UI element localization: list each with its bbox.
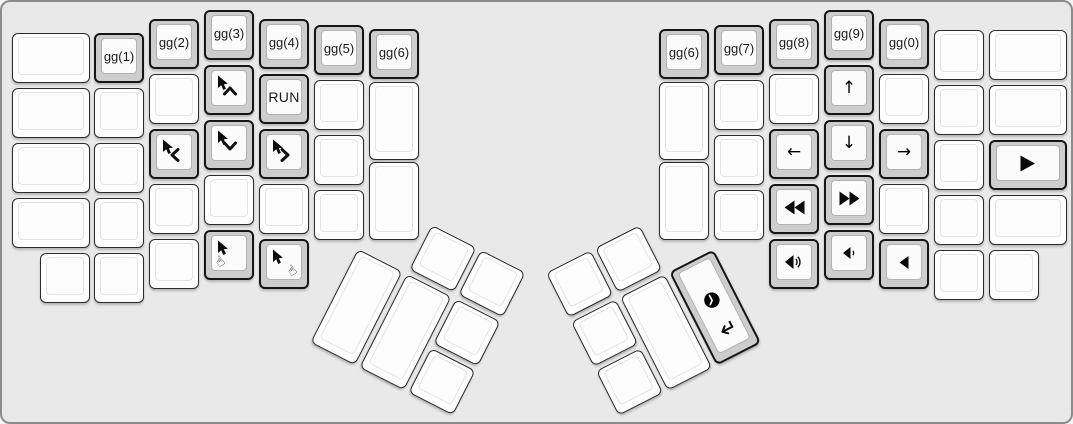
keytop — [375, 166, 413, 232]
key-legend: RUN — [268, 89, 299, 105]
keytop: ← — [776, 134, 812, 170]
key-mouse-left[interactable] — [149, 129, 199, 179]
keytop — [775, 78, 813, 116]
keytop: gg(3) — [211, 15, 247, 51]
keytop — [417, 354, 468, 405]
keytop — [46, 257, 84, 295]
keytop — [320, 139, 358, 177]
key-mute[interactable] — [879, 239, 929, 289]
keytop: RUN — [266, 79, 302, 115]
key-blank[interactable] — [259, 184, 309, 234]
keytop — [831, 235, 867, 271]
keytop: gg(2) — [156, 24, 192, 60]
keytop — [155, 78, 193, 116]
keytop — [940, 144, 978, 182]
keytop — [553, 257, 604, 308]
keytop — [776, 189, 812, 225]
key-blank[interactable] — [12, 88, 90, 138]
key-blank[interactable] — [149, 74, 199, 124]
keytop — [885, 78, 923, 116]
key-blank[interactable] — [879, 184, 929, 234]
keytop — [375, 86, 413, 152]
arrow-down-icon: ↓ — [842, 135, 856, 152]
key-gg-4[interactable]: gg(4) — [259, 19, 309, 69]
keytop — [831, 180, 867, 216]
keytop — [578, 306, 629, 357]
key-mouse-up[interactable] — [204, 65, 254, 115]
key-blank[interactable] — [714, 80, 764, 130]
fast-forward-icon — [839, 191, 860, 206]
key-blank[interactable] — [12, 33, 90, 83]
chevron-right-icon — [280, 147, 291, 162]
keytop: ☝ — [266, 244, 302, 280]
keytop — [940, 254, 978, 292]
key-blank[interactable] — [40, 253, 90, 303]
arrow-up-icon: ↑ — [842, 80, 856, 97]
keytop — [602, 232, 653, 283]
chevron-down-icon — [223, 140, 238, 151]
keytop — [211, 125, 247, 161]
key-legend: gg(9) — [834, 26, 864, 41]
keytop: ↑ — [831, 70, 867, 106]
key-blank[interactable] — [659, 82, 709, 160]
key-mouse-button-right[interactable]: ☝ — [259, 239, 309, 289]
keytop — [995, 34, 1061, 72]
key-play[interactable] — [989, 140, 1067, 190]
key-fast-forward[interactable] — [824, 175, 874, 225]
keytop — [665, 166, 703, 232]
key-blank[interactable] — [204, 175, 254, 225]
keyboard-canvas: gg(1)gg(2)gg(3)☝gg(4)RUN☝gg(5)gg(6)gg(6)… — [0, 0, 1073, 424]
keytop: gg(6) — [666, 34, 702, 70]
key-blank[interactable] — [94, 143, 144, 193]
key-gg-6-right[interactable]: gg(6) — [659, 29, 709, 79]
keytop — [266, 134, 302, 170]
key-gg-3[interactable]: gg(3) — [204, 10, 254, 60]
arrow-left-icon: ← — [787, 144, 801, 161]
keytop — [442, 305, 493, 356]
key-arrow-down[interactable]: ↓ — [824, 120, 874, 170]
chevron-left-icon — [170, 147, 181, 162]
key-run[interactable]: RUN — [259, 74, 309, 124]
key-blank[interactable] — [369, 162, 419, 240]
keytop: gg(9) — [831, 15, 867, 51]
keytop — [665, 86, 703, 152]
keytop — [320, 194, 358, 232]
key-blank[interactable] — [989, 250, 1039, 300]
keytop — [720, 194, 758, 232]
key-legend: gg(7) — [724, 41, 754, 56]
volume-down-icon — [842, 246, 857, 260]
key-blank[interactable] — [149, 184, 199, 234]
keytop — [18, 92, 84, 130]
key-mouse-down[interactable] — [204, 120, 254, 170]
keytop — [100, 147, 138, 185]
chevron-up-icon — [223, 85, 238, 96]
keytop — [100, 92, 138, 130]
key-volume-up[interactable] — [769, 239, 819, 289]
key-blank[interactable] — [989, 85, 1067, 135]
key-rewind[interactable] — [769, 184, 819, 234]
key-blank[interactable] — [94, 198, 144, 248]
key-blank[interactable] — [149, 239, 199, 289]
key-legend: gg(4) — [269, 35, 299, 50]
key-arrow-right[interactable]: → — [879, 129, 929, 179]
keytop: ☝ — [211, 235, 247, 271]
keytop — [155, 188, 193, 226]
key-mouse-button-left[interactable]: ☝ — [204, 230, 254, 280]
keytop — [320, 84, 358, 122]
volume-mute-icon — [898, 255, 910, 270]
keytop — [940, 34, 978, 72]
key-blank[interactable] — [314, 80, 364, 130]
key-blank[interactable] — [934, 195, 984, 245]
key-blank[interactable] — [714, 190, 764, 240]
key-gg-8[interactable]: gg(8) — [769, 19, 819, 69]
keytop — [100, 257, 138, 295]
return-icon — [715, 319, 737, 339]
key-blank[interactable] — [12, 198, 90, 248]
keytop — [18, 37, 84, 75]
key-blank[interactable] — [714, 135, 764, 185]
keytop — [886, 244, 922, 280]
keytop: gg(1) — [101, 38, 137, 74]
key-legend: gg(2) — [159, 35, 189, 50]
key-blank[interactable] — [934, 85, 984, 135]
key-gg-9[interactable]: gg(9) — [824, 10, 874, 60]
keytop — [720, 139, 758, 177]
keytop — [18, 202, 84, 240]
key-blank[interactable] — [989, 30, 1067, 80]
key-blank[interactable] — [879, 74, 929, 124]
key-mouse-right[interactable] — [259, 129, 309, 179]
keytop — [995, 199, 1061, 237]
keytop — [100, 202, 138, 240]
keytop: ↓ — [831, 125, 867, 161]
keytop — [995, 89, 1061, 127]
key-legend: gg(8) — [779, 35, 809, 50]
key-gg-6[interactable]: gg(6) — [369, 29, 419, 79]
key-gg-7[interactable]: gg(7) — [714, 25, 764, 75]
key-blank[interactable] — [314, 190, 364, 240]
key-legend: gg(1) — [104, 49, 134, 64]
key-blank[interactable] — [369, 82, 419, 160]
play-icon — [1018, 154, 1037, 173]
keytop — [940, 199, 978, 237]
keytop — [940, 89, 978, 127]
keytop: gg(6) — [376, 34, 412, 70]
keytop — [265, 188, 303, 226]
key-arrow-up[interactable]: ↑ — [824, 65, 874, 115]
volume-up-icon — [784, 254, 804, 270]
keytop — [418, 231, 469, 282]
keytop: → — [886, 134, 922, 170]
keytop — [996, 145, 1060, 181]
keytop — [210, 179, 248, 217]
key-blank[interactable] — [314, 135, 364, 185]
keytop — [155, 243, 193, 281]
key-legend: gg(5) — [324, 41, 354, 56]
key-arrow-left[interactable]: ← — [769, 129, 819, 179]
keytop — [603, 355, 654, 406]
key-blank[interactable] — [12, 143, 90, 193]
keytop: gg(5) — [321, 30, 357, 66]
keytop — [885, 188, 923, 226]
key-blank[interactable] — [769, 74, 819, 124]
key-volume-down[interactable] — [824, 230, 874, 280]
keytop — [720, 84, 758, 122]
mouse-cursor-icon — [272, 249, 284, 265]
key-blank[interactable] — [94, 88, 144, 138]
key-gg-1[interactable]: gg(1) — [94, 33, 144, 83]
keytop — [18, 147, 84, 185]
key-blank[interactable] — [934, 30, 984, 80]
key-gg-0[interactable]: gg(0) — [879, 19, 929, 69]
key-legend: gg(3) — [214, 26, 244, 41]
keytop — [211, 70, 247, 106]
key-legend: gg(0) — [889, 35, 919, 50]
key-legend: gg(6) — [669, 45, 699, 60]
rewind-icon — [784, 200, 805, 215]
clock-icon — [700, 289, 723, 312]
keytop — [776, 244, 812, 280]
keytop: gg(7) — [721, 30, 757, 66]
keytop: gg(0) — [886, 24, 922, 60]
keytop — [467, 256, 518, 307]
key-gg-2[interactable]: gg(2) — [149, 19, 199, 69]
arrow-right-icon: → — [897, 144, 911, 161]
key-blank[interactable] — [989, 195, 1067, 245]
hand-right-icon: ☝ — [285, 263, 300, 279]
key-blank[interactable] — [94, 253, 144, 303]
key-legend: gg(6) — [379, 45, 409, 60]
keytop: gg(8) — [776, 24, 812, 60]
keytop: gg(4) — [266, 24, 302, 60]
hand-left-icon: ☝ — [213, 254, 228, 270]
keytop — [156, 134, 192, 170]
key-blank[interactable] — [934, 140, 984, 190]
key-blank[interactable] — [659, 162, 709, 240]
key-gg-5[interactable]: gg(5) — [314, 25, 364, 75]
key-blank[interactable] — [934, 250, 984, 300]
keytop — [995, 254, 1033, 292]
